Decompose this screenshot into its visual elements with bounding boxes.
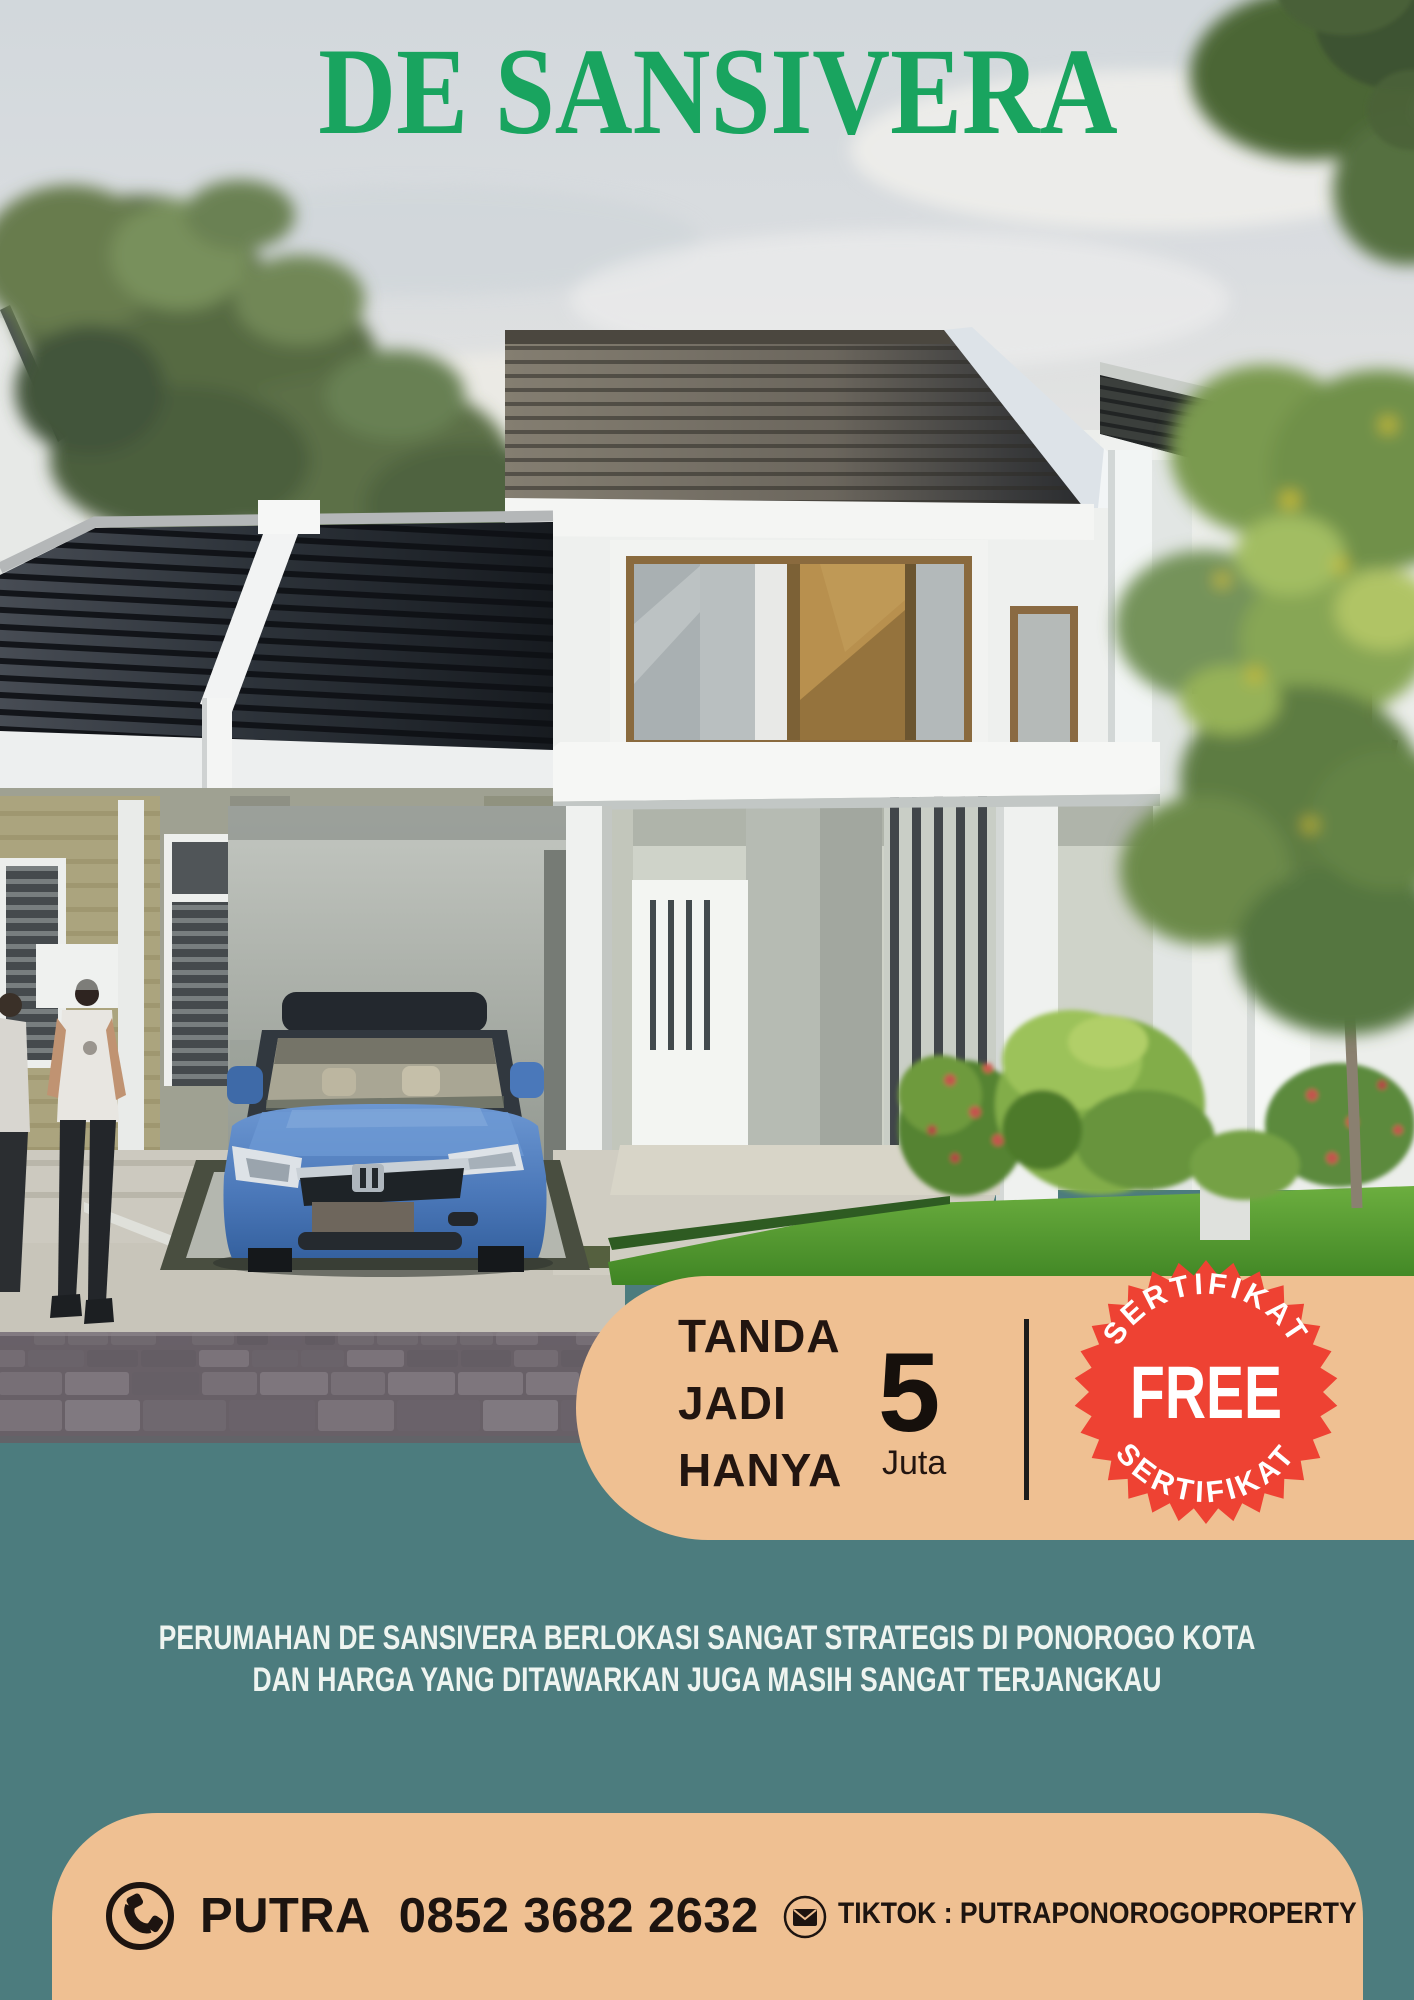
svg-text:FREE: FREE (1130, 1351, 1282, 1434)
